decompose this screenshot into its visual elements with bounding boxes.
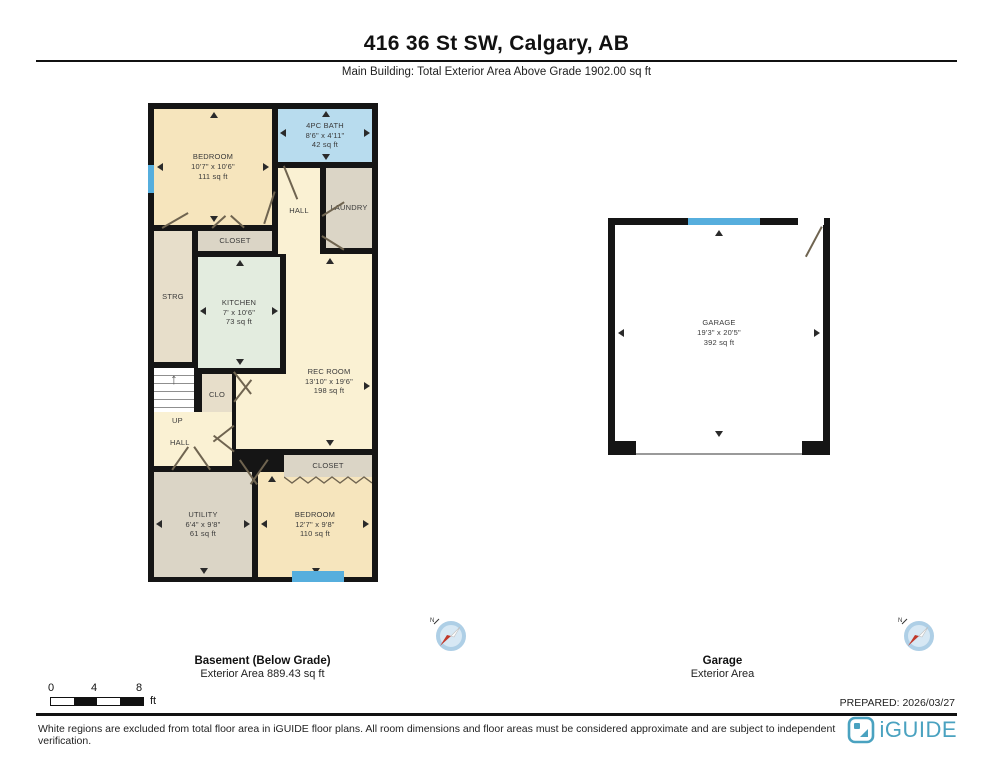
- room-garage: GARAGE 19'3" x 20'5" 392 sq ft: [615, 225, 823, 441]
- room-closet-small: CLO: [202, 374, 232, 416]
- floorplan-page: 416 36 St SW, Calgary, AB Main Building:…: [0, 0, 993, 768]
- scale-bar: [50, 697, 144, 706]
- dimension-arrow-icon: [715, 431, 723, 437]
- door-opening: [798, 218, 824, 225]
- room-hall-upper: HALL: [278, 168, 320, 254]
- room-rec-room: REC ROOM 13'10" x 19'6" 198 sq ft: [286, 254, 372, 449]
- room-bath: 4PC BATH 8'6" x 4'11" 42 sq ft: [278, 109, 372, 162]
- dimension-arrow-icon: [364, 129, 370, 137]
- dimension-arrow-icon: [263, 163, 269, 171]
- window: [688, 218, 760, 225]
- room-closet-lower: CLOSET: [284, 455, 372, 477]
- room-label: HALL: [289, 206, 309, 216]
- basement-floorplan: BEDROOM 10'7" x 10'6" 111 sq ft 4PC BATH…: [148, 103, 378, 582]
- caption-subtitle: Exterior Area: [630, 668, 815, 680]
- room-label: CLO: [209, 390, 225, 400]
- header-divider: [36, 60, 957, 62]
- scale-tick-8: 8: [136, 682, 142, 694]
- page-subtitle: Main Building: Total Exterior Area Above…: [0, 66, 993, 78]
- dimension-arrow-icon: [322, 111, 330, 117]
- page-title: 416 36 St SW, Calgary, AB: [0, 32, 993, 56]
- up-label: UP: [172, 416, 183, 426]
- room-label: KITCHEN 7' x 10'6" 73 sq ft: [222, 298, 256, 327]
- dimension-arrow-icon: [364, 382, 370, 390]
- window: [292, 571, 344, 582]
- compass-icon: N: [898, 614, 936, 652]
- room-utility: UTILITY 6'4" x 9'8" 61 sq ft: [154, 472, 252, 577]
- garage-door-opening: [636, 441, 802, 455]
- dimension-arrow-icon: [210, 112, 218, 118]
- stairs-up-arrow-icon: ↑: [154, 370, 194, 390]
- dimension-arrow-icon: [261, 520, 267, 528]
- dimension-arrow-icon: [272, 307, 278, 315]
- window: [148, 165, 154, 193]
- room-label: STRG: [162, 292, 184, 302]
- svg-text:N: N: [430, 618, 434, 624]
- room-label: BEDROOM 10'7" x 10'6" 111 sq ft: [191, 152, 235, 181]
- dimension-arrow-icon: [326, 258, 334, 264]
- garage-caption: Garage Exterior Area: [630, 655, 815, 680]
- room-label: CLOSET: [219, 236, 250, 246]
- dimension-arrow-icon: [814, 329, 820, 337]
- svg-text:N: N: [898, 618, 902, 624]
- caption-title: Basement (Below Grade): [170, 655, 355, 667]
- brand-logo: iGUIDE: [847, 716, 957, 744]
- dimension-arrow-icon: [236, 260, 244, 266]
- dimension-arrow-icon: [363, 520, 369, 528]
- dimension-arrow-icon: [322, 154, 330, 160]
- room-bedroom-lower: BEDROOM 12'7" x 9'8" 110 sq ft: [258, 472, 372, 577]
- scale-segment: [74, 698, 97, 705]
- dimension-arrow-icon: [715, 230, 723, 236]
- compass-icon: N: [430, 614, 468, 652]
- iguide-logo-icon: [847, 716, 875, 744]
- scale-segment: [97, 698, 120, 705]
- room-hall-lower: UP HALL: [154, 412, 232, 466]
- scale-segment: [120, 698, 143, 705]
- caption-subtitle: Exterior Area 889.43 sq ft: [170, 668, 355, 680]
- room-kitchen: KITCHEN 7' x 10'6" 73 sq ft: [198, 257, 280, 368]
- room-label: BEDROOM 12'7" x 9'8" 110 sq ft: [295, 510, 335, 539]
- scale-unit-label: ft: [150, 695, 156, 707]
- room-label: 4PC BATH 8'6" x 4'11" 42 sq ft: [306, 121, 345, 150]
- scale-tick-4: 4: [91, 682, 97, 694]
- dimension-arrow-icon: [244, 520, 250, 528]
- prepared-date: PREPARED: 2026/03/27: [840, 697, 955, 709]
- disclaimer-text: White regions are excluded from total fl…: [38, 723, 848, 747]
- dimension-arrow-icon: [268, 476, 276, 482]
- dimension-arrow-icon: [157, 163, 163, 171]
- garage-floorplan: GARAGE 19'3" x 20'5" 392 sq ft: [608, 218, 830, 455]
- room-label: GARAGE 19'3" x 20'5" 392 sq ft: [697, 318, 741, 347]
- dimension-arrow-icon: [618, 329, 624, 337]
- dimension-arrow-icon: [326, 440, 334, 446]
- scale-segment: [51, 698, 74, 705]
- dimension-arrow-icon: [156, 520, 162, 528]
- room-label: UTILITY 6'4" x 9'8" 61 sq ft: [186, 510, 221, 539]
- room-label: CLOSET: [312, 461, 343, 471]
- room-storage: STRG: [154, 231, 192, 362]
- brand-name: iGUIDE: [879, 717, 957, 743]
- room-label: REC ROOM 13'10" x 19'6" 198 sq ft: [305, 367, 353, 396]
- dimension-arrow-icon: [200, 307, 206, 315]
- dimension-arrow-icon: [280, 129, 286, 137]
- caption-title: Garage: [630, 655, 815, 667]
- bifold-door-icon: [284, 475, 372, 485]
- room-bedroom-upper: BEDROOM 10'7" x 10'6" 111 sq ft: [154, 109, 272, 225]
- basement-caption: Basement (Below Grade) Exterior Area 889…: [170, 655, 355, 680]
- dimension-arrow-icon: [236, 359, 244, 365]
- dimension-arrow-icon: [200, 568, 208, 574]
- footer-divider: [36, 713, 957, 716]
- stairs: ↑: [154, 368, 194, 412]
- scale-tick-0: 0: [48, 682, 54, 694]
- room-closet-upper: CLOSET: [198, 231, 272, 251]
